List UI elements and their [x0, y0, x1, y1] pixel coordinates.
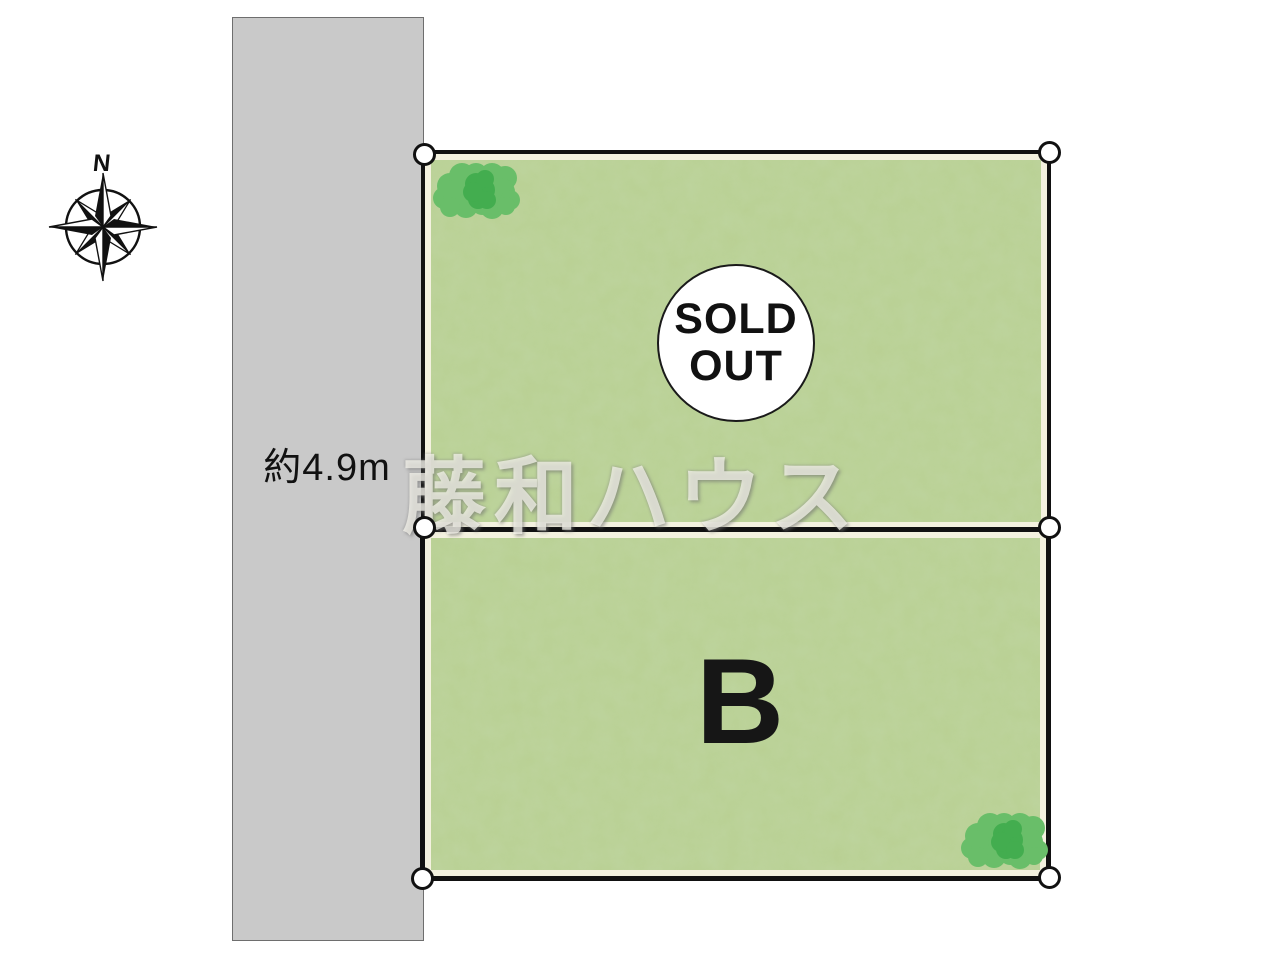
corner-marker	[411, 867, 434, 890]
north-label: N	[92, 150, 112, 177]
watermark: 藤和ハウス	[402, 430, 862, 551]
sold-out-line1: SOLD	[674, 296, 797, 343]
corner-marker	[413, 516, 436, 539]
plot-b-label: B	[660, 640, 820, 762]
tree-icon	[956, 808, 1048, 876]
corner-marker	[1038, 516, 1061, 539]
corner-marker	[1038, 141, 1061, 164]
corner-marker	[413, 143, 436, 166]
compass-rose-icon: N	[43, 145, 163, 285]
tree-icon	[428, 158, 520, 226]
sold-out-line2: OUT	[689, 343, 783, 390]
sold-out-badge: SOLD OUT	[657, 264, 815, 422]
site-plan-canvas: 約4.9m N	[0, 0, 1280, 960]
road-width-label: 約4.9m	[252, 436, 402, 491]
corner-marker	[1038, 866, 1061, 889]
